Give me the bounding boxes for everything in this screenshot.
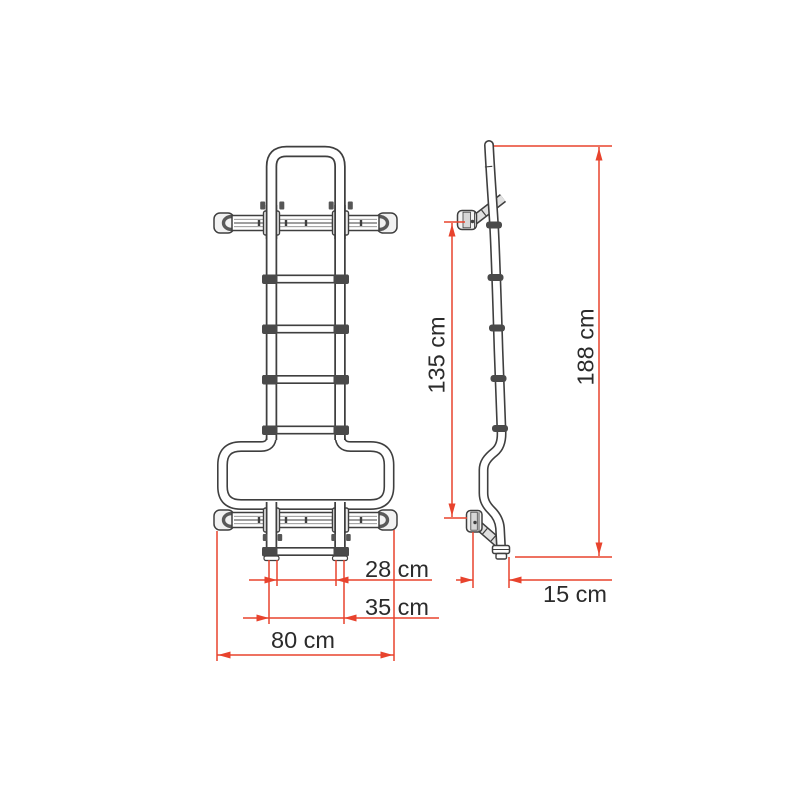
arrowhead	[461, 577, 474, 584]
arrowhead	[449, 504, 456, 517]
ladder-dimension-diagram: 28 cm 35 cm 80 cm 15 cm 135 cm 188 cm	[0, 0, 800, 800]
ladder-rung-4	[262, 426, 349, 436]
ladder-rung-3	[262, 375, 349, 385]
dimension-label-15cm: 15 cm	[543, 581, 607, 607]
technical-drawing-canvas: 28 cm 35 cm 80 cm 15 cm 135 cm 188 cm	[0, 0, 800, 800]
ladder-side-view	[458, 145, 510, 559]
dimension-label-28cm: 28 cm	[365, 556, 429, 582]
arrowhead	[336, 577, 349, 584]
arrowhead	[596, 543, 603, 556]
lower-frame	[223, 430, 390, 505]
arrowhead	[381, 652, 394, 659]
side-rail-foot	[493, 546, 510, 560]
arrowhead	[344, 615, 357, 622]
upper-wall-foot	[458, 211, 477, 230]
bottom-step	[262, 547, 349, 561]
ladder-front-view	[214, 152, 397, 561]
arrowhead	[218, 652, 231, 659]
arrowhead	[257, 615, 270, 622]
dimension-label-135cm: 135 cm	[424, 316, 450, 393]
ladder-rung-2	[262, 325, 349, 335]
dimension-label-80cm: 80 cm	[271, 627, 335, 653]
top-mounting-bar	[214, 202, 397, 240]
dimension-label-35cm: 35 cm	[365, 594, 429, 620]
arrowhead	[509, 577, 522, 584]
arrowhead	[449, 224, 456, 237]
arrowhead	[596, 148, 603, 161]
dimension-label-188cm: 188 cm	[573, 308, 599, 385]
arrowhead	[265, 577, 278, 584]
ladder-rung-1	[262, 275, 349, 285]
ladder-hoop	[272, 152, 341, 441]
lower-wall-foot	[467, 511, 483, 533]
